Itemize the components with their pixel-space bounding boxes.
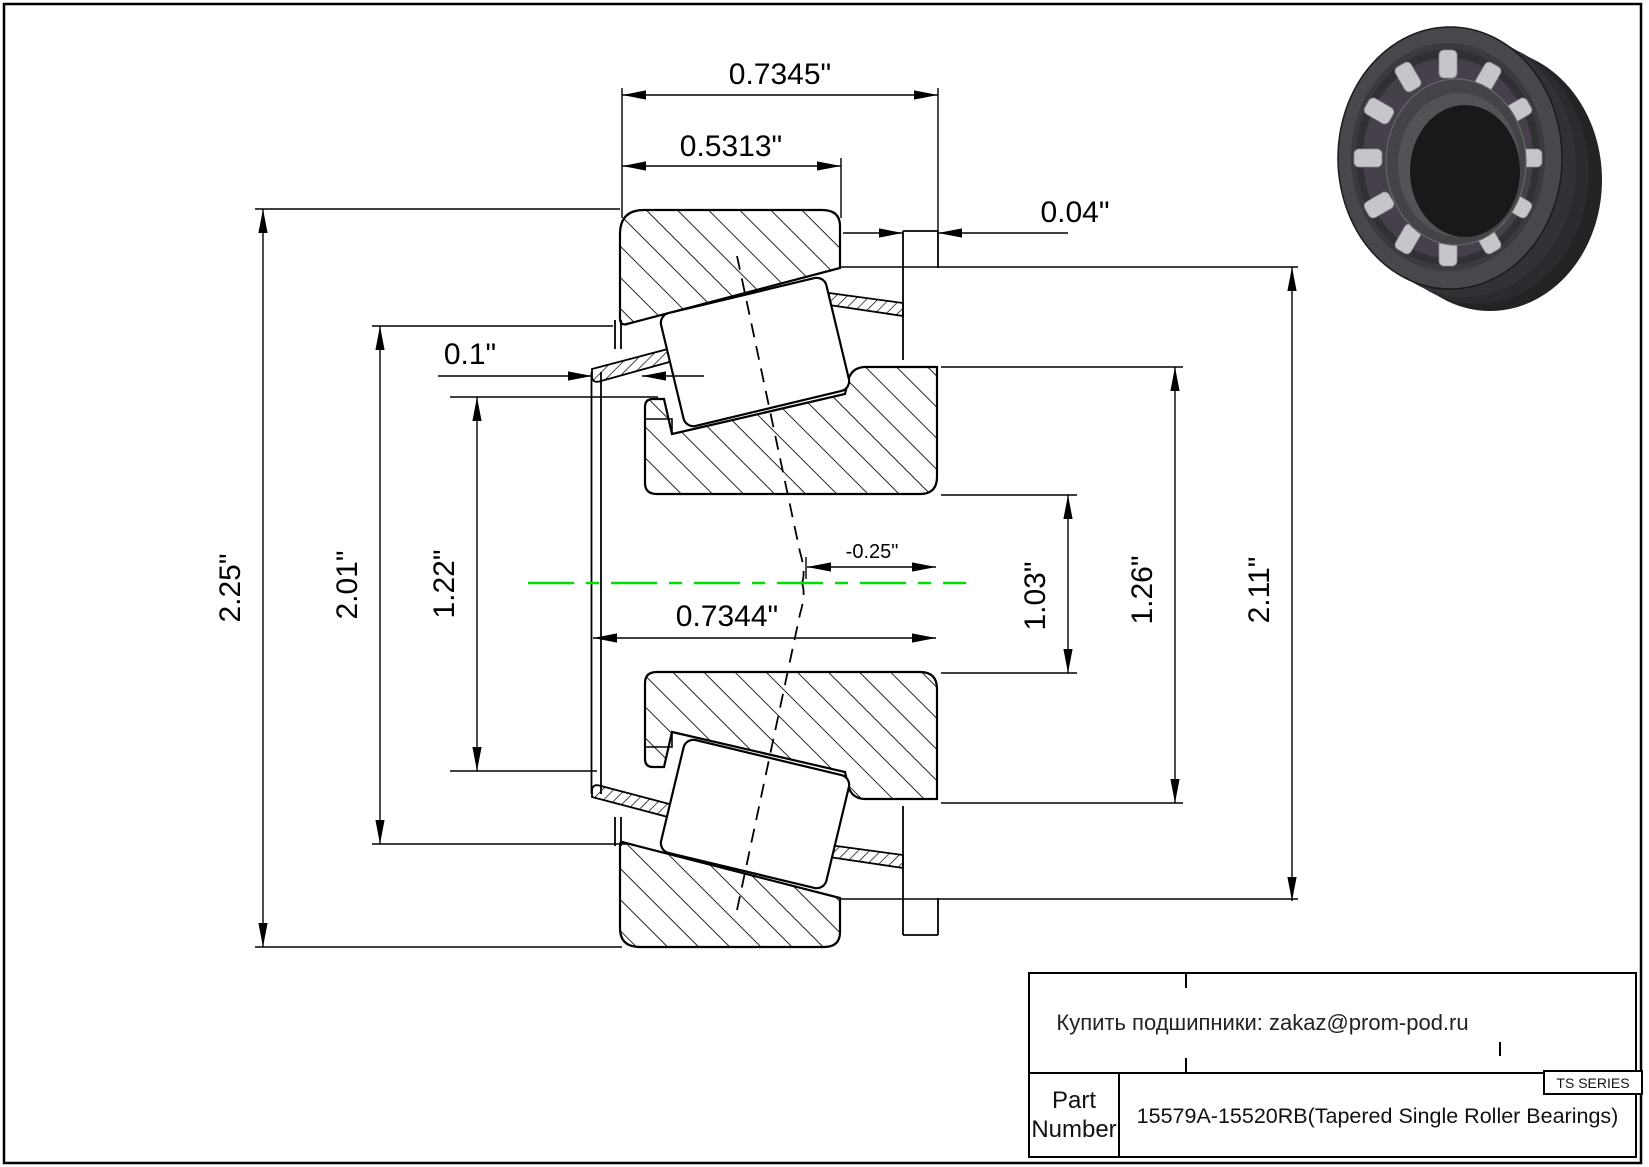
dim-rib-diameter: 1.26" [1126,555,1159,624]
dim-center-offset: -0.25" [846,541,899,563]
dim-cup-width: 0.5313" [680,130,782,163]
title-block: Купить подшипники: zakaz@prom-pod.ru Par… [1028,972,1637,1158]
dim-inner-diameter: 1.03" [1019,561,1052,630]
series-badge: TS SERIES [1543,1070,1643,1095]
registration-tick [1185,974,1187,988]
title-block-top-row: Купить подшипники: zakaz@prom-pod.ru [1030,974,1635,1074]
dim-outer-diameter: 2.25" [214,553,247,622]
registration-tick [1499,1042,1501,1056]
registration-tick [1185,1058,1187,1072]
dim-race-diameter: 2.01" [331,550,364,619]
dim-bore-width: 0.7344" [676,600,778,633]
dim-stand-out: 0.04" [1040,196,1109,229]
contact-line: Купить подшипники: zakaz@prom-pod.ru [1030,974,1635,1072]
dim-total-width: 0.7345" [729,58,831,91]
dim-cage-diameter: 1.22" [428,549,461,618]
dim-lip-width: 0.1" [444,338,496,371]
bearing-3d-render [1338,27,1602,311]
bearing-drawing-page: 0.7345" 0.5313" 0.04" 0.1" 0.7344" -0.25… [0,0,1649,1167]
part-number-label: Part Number [1030,1074,1120,1158]
dim-flange-diameter: 2.11" [1243,557,1276,624]
